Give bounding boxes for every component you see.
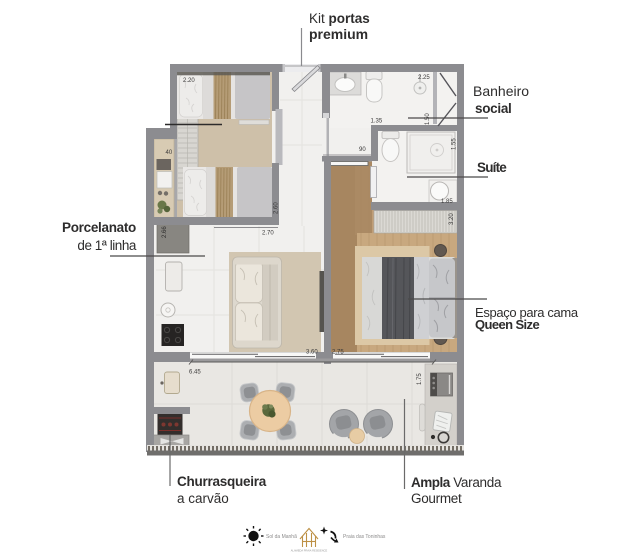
svg-text:1.75: 1.75 xyxy=(417,373,423,385)
svg-text:Sol da Manhã: Sol da Manhã xyxy=(266,534,297,540)
svg-text:Porcelanato: Porcelanato xyxy=(62,220,136,235)
svg-text:2.20: 2.20 xyxy=(183,78,195,84)
svg-text:social: social xyxy=(475,101,511,116)
svg-text:Suíte: Suíte xyxy=(477,160,507,175)
svg-text:40: 40 xyxy=(166,150,173,156)
svg-text:ALAMEDA PRAIA RESIDENCE: ALAMEDA PRAIA RESIDENCE xyxy=(291,549,328,553)
svg-text:a carvão: a carvão xyxy=(177,491,229,506)
svg-text:Queen Size: Queen Size xyxy=(475,317,539,332)
svg-text:de 1ª linha: de 1ª linha xyxy=(77,238,137,253)
svg-text:90: 90 xyxy=(359,147,366,153)
svg-text:Praia das Toninhas: Praia das Toninhas xyxy=(343,534,386,540)
svg-text:6.45: 6.45 xyxy=(189,370,201,376)
svg-text:2.75: 2.75 xyxy=(332,350,344,356)
svg-text:premium: premium xyxy=(309,26,368,42)
svg-text:2.70: 2.70 xyxy=(262,231,274,237)
svg-text:Ampla Varanda: Ampla Varanda xyxy=(411,475,502,490)
svg-text:2.25: 2.25 xyxy=(418,75,430,81)
svg-text:3.20: 3.20 xyxy=(449,213,455,225)
svg-text:2.60: 2.60 xyxy=(274,202,280,214)
svg-text:1.85: 1.85 xyxy=(441,199,453,205)
svg-text:Kit portas: Kit portas xyxy=(309,11,370,26)
svg-text:3.60: 3.60 xyxy=(306,350,318,356)
svg-text:Banheiro: Banheiro xyxy=(473,83,529,99)
svg-text:1.35: 1.35 xyxy=(371,119,383,125)
svg-text:2.66: 2.66 xyxy=(162,226,168,238)
svg-text:1.50: 1.50 xyxy=(425,113,431,125)
svg-text:Churrasqueira: Churrasqueira xyxy=(177,474,267,489)
svg-text:Gourmet: Gourmet xyxy=(411,491,462,506)
svg-text:1.55: 1.55 xyxy=(452,138,458,150)
